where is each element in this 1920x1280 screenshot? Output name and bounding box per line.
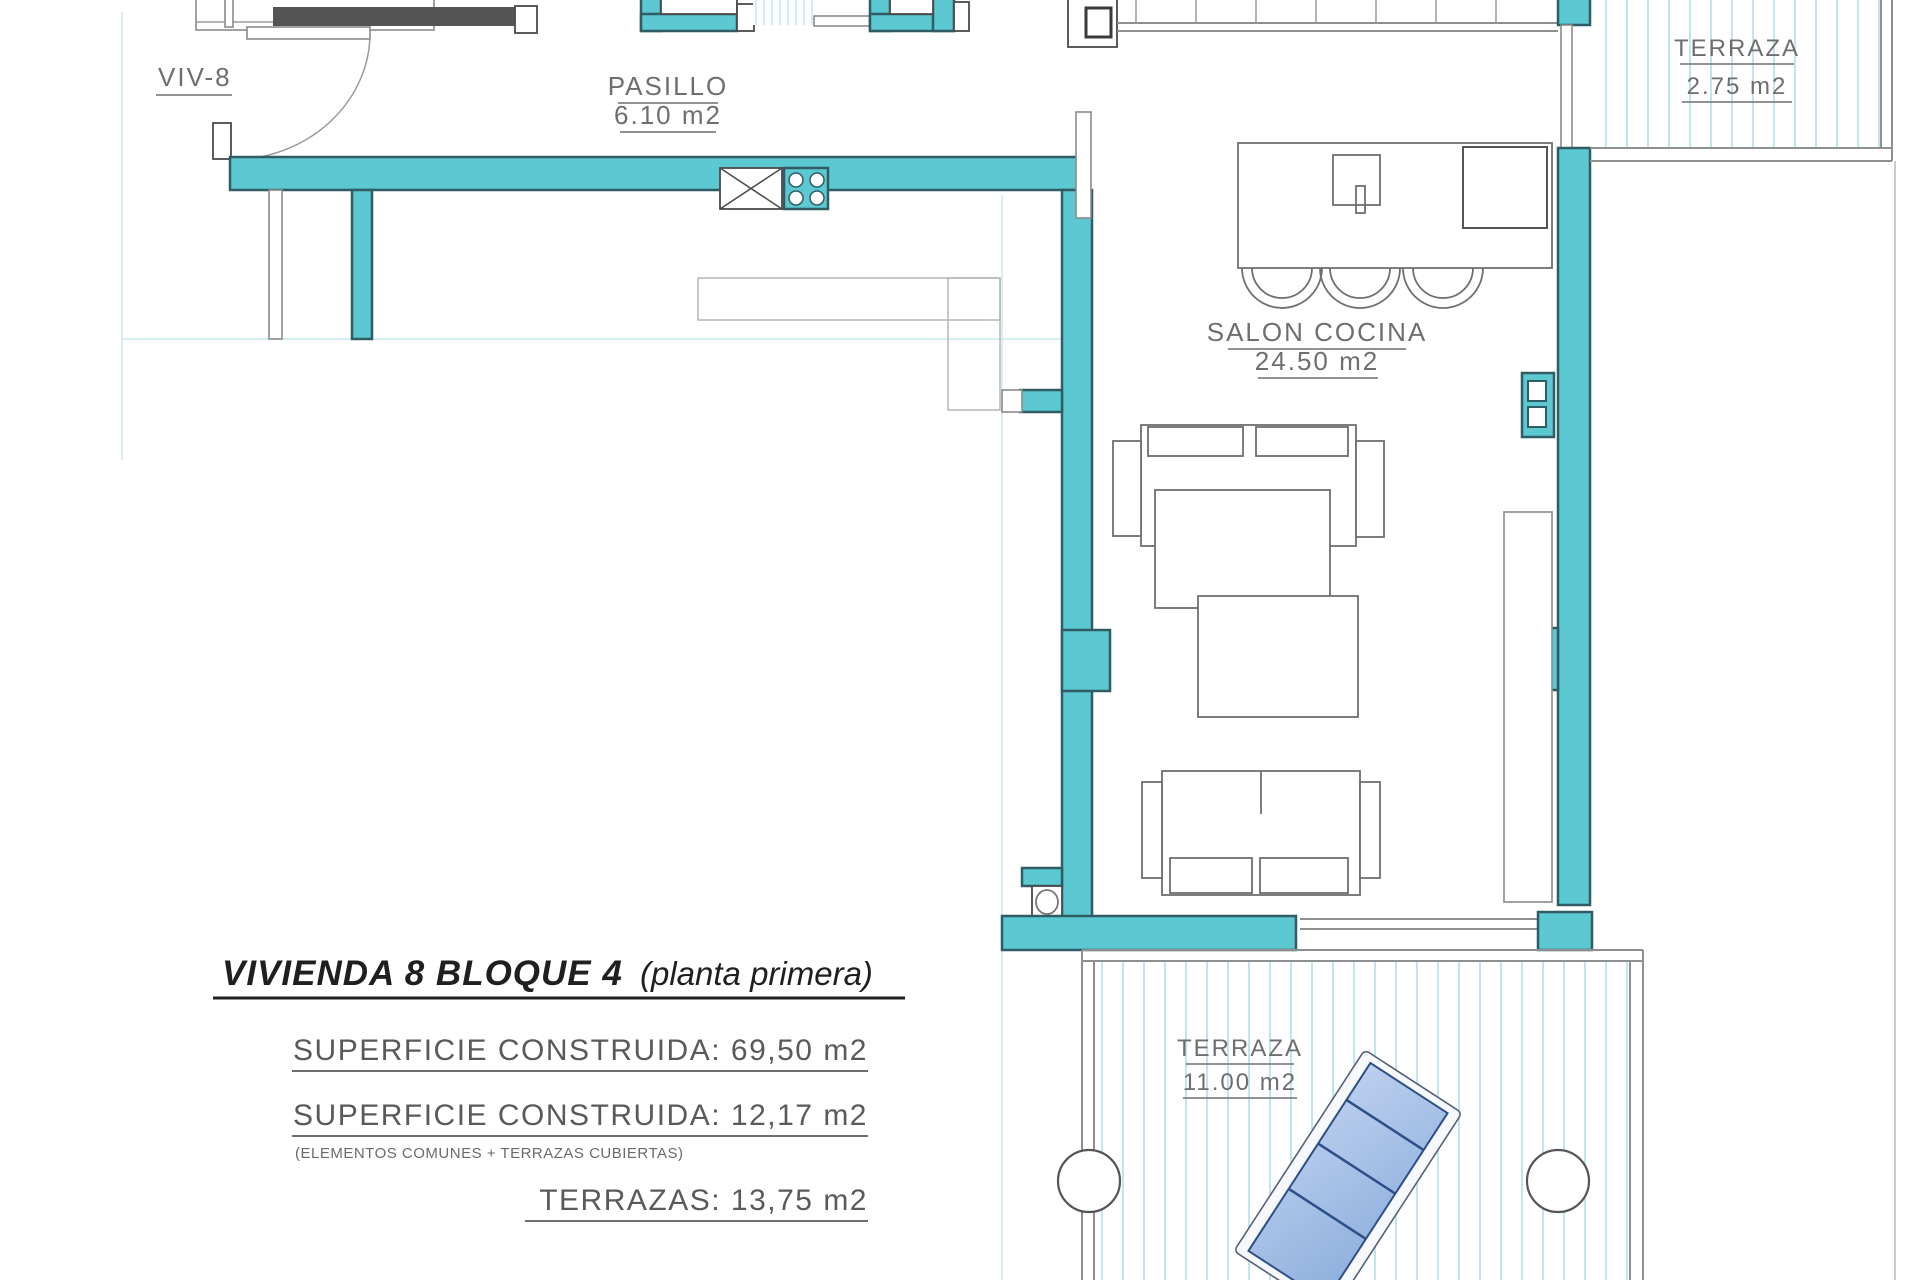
pasillo-area: 6.10 m2 xyxy=(614,100,722,130)
surface-line-2: SUPERFICIE CONSTRUIDA: 12,17 m2 xyxy=(293,1099,868,1132)
terrace-top: TERRAZA 2.75 m2 xyxy=(1590,0,1892,161)
stair-hatch xyxy=(753,0,814,25)
pasillo-south-wall xyxy=(230,157,1090,190)
terraza-top-area: 2.75 m2 xyxy=(1687,73,1788,100)
salon-area: 24.50 m2 xyxy=(1255,346,1379,376)
sink-unit xyxy=(720,168,782,209)
title-block: VIVIENDA 8 BLOQUE 4 (planta primera) SUP… xyxy=(213,954,905,1221)
shaft-inner xyxy=(1086,8,1111,37)
wall-unit-boxes xyxy=(1522,373,1554,437)
counter-outline xyxy=(698,278,1000,320)
column xyxy=(1058,1150,1120,1212)
entry-and-closet xyxy=(196,0,537,160)
salon-label: SALON COCINA xyxy=(1207,317,1428,347)
terraza-bottom-area: 11.00 m2 xyxy=(1183,1069,1297,1096)
west-wall-pilaster xyxy=(1062,630,1110,691)
island-cooktop xyxy=(1463,147,1547,228)
top-wall-band xyxy=(273,7,533,26)
door-leaf xyxy=(814,16,872,26)
window-glass xyxy=(1561,25,1572,148)
plan-title-suffix: (planta primera) xyxy=(640,955,873,992)
column xyxy=(1527,1150,1589,1212)
surface-line-1: SUPERFICIE CONSTRUIDA: 69,50 m2 xyxy=(293,1034,868,1067)
terraza-bottom-label: TERRAZA xyxy=(1177,1035,1303,1062)
sofa-bottom xyxy=(1142,771,1380,895)
terrace-bottom: TERRAZA 11.00 m2 xyxy=(1058,950,1643,1280)
salon-west-wall xyxy=(1062,190,1092,920)
hob-unit xyxy=(784,168,828,209)
salon-south-wall xyxy=(1002,916,1296,950)
kitchen-island xyxy=(1238,143,1552,268)
floor-plan-drawing: TERRAZA 2.75 m2 TERRAZA 11.00 m2 VIV-8 xyxy=(0,0,1920,1280)
window-band xyxy=(1117,0,1558,31)
entry-door-swing-arc xyxy=(230,33,370,160)
bar-stools xyxy=(1242,268,1483,308)
surface-note: (ELEMENTOS COMUNES + TERRAZAS CUBIERTAS) xyxy=(295,1145,684,1162)
room-labels: VIV-8 PASILLO 6.10 m2 SALON COCINA 24.50… xyxy=(156,62,1427,378)
top-strip-structures xyxy=(641,0,1558,47)
entry-door-leaf xyxy=(247,27,370,39)
salon-furniture xyxy=(1113,425,1384,895)
terrazas-line: TERRAZAS: 13,75 m2 xyxy=(539,1184,868,1217)
door-jamb xyxy=(1076,112,1091,218)
salon-east-wall xyxy=(1558,148,1590,905)
window-leaf xyxy=(1504,512,1552,902)
plan-title: VIVIENDA 8 BLOQUE 4 xyxy=(222,954,623,993)
unit-label: VIV-8 xyxy=(158,62,232,92)
kitchen xyxy=(698,143,1552,410)
floor-plan-page: TERRAZA 2.75 m2 TERRAZA 11.00 m2 VIV-8 xyxy=(0,0,1920,1280)
pasillo-label: PASILLO xyxy=(608,71,728,101)
terraza-top-label: TERRAZA xyxy=(1674,35,1800,62)
coffee-tables xyxy=(1155,490,1358,717)
